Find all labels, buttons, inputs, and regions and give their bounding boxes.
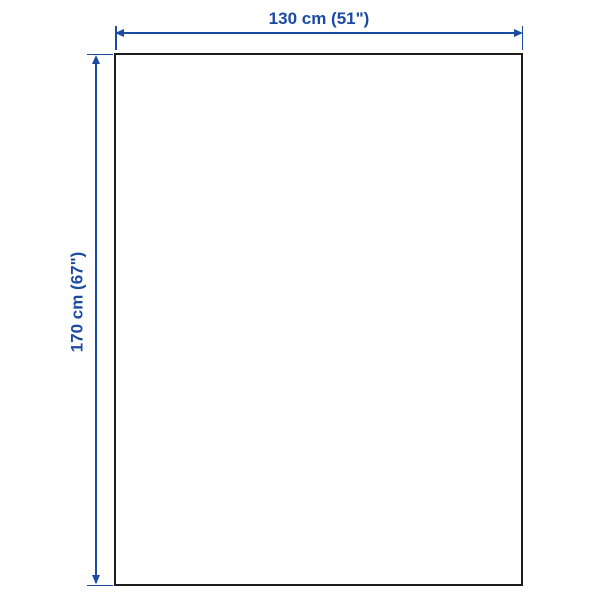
arrow-down-icon [92, 575, 100, 584]
width-dimension-label: 130 cm (51") [115, 10, 523, 27]
width-extension-line-right [522, 26, 524, 50]
width-extension-line-left [115, 26, 117, 50]
width-dimension-line [118, 32, 520, 34]
dimension-diagram: 130 cm (51") 170 cm (67") [0, 0, 600, 600]
height-dimension-label: 170 cm (67") [69, 252, 86, 353]
product-outline [114, 53, 523, 586]
height-extension-line-bottom [87, 585, 113, 587]
arrow-up-icon [92, 55, 100, 64]
height-extension-line-top [87, 54, 113, 56]
height-dimension-line [95, 57, 97, 583]
